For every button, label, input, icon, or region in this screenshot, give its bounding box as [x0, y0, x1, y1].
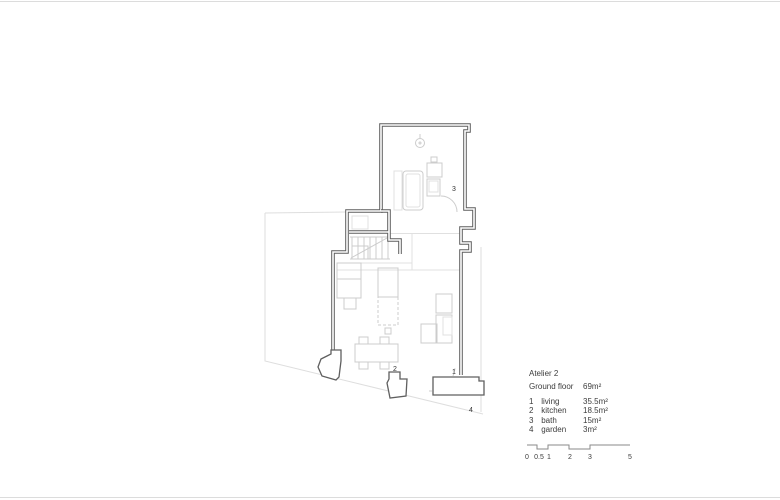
pier-right [433, 377, 484, 395]
room-area: 35.5m² [583, 397, 608, 406]
floor-name: Ground floor [529, 382, 573, 391]
staircase [350, 216, 390, 259]
exterior-wall-core [333, 125, 474, 375]
kitchen-island-dashed [378, 297, 398, 325]
total-area: 69m² [583, 380, 601, 393]
room-number: 1 [529, 397, 539, 406]
room-name: garden [541, 425, 566, 434]
scale-tick-2: 2 [568, 454, 572, 461]
bath-fixtures [394, 134, 457, 212]
closet-under-stairs [352, 216, 368, 229]
ceiling-light-icon [416, 139, 425, 148]
scale-bar-line [527, 445, 630, 449]
plan-label-living: 1 [452, 369, 456, 376]
room-name: living [541, 397, 559, 406]
room-area: 3m² [583, 425, 597, 434]
kitchen-island [378, 268, 398, 297]
legend-row: 2 kitchen 18.5m² [529, 406, 649, 415]
plan-label-kitchen: 2 [393, 366, 397, 373]
armchair-block [421, 324, 437, 343]
bath-sink [427, 163, 442, 177]
scale-bar: 0 0.5 1 2 3 5 [525, 445, 632, 461]
chair [380, 362, 389, 369]
bath-shelf [394, 171, 402, 210]
bathtub-inner [406, 174, 420, 207]
legend-row: 1 living 35.5m² [529, 397, 649, 406]
floor-plan-svg: 1 2 3 4 0 0.5 1 2 3 5 [0, 0, 780, 500]
toilet-inner [429, 181, 438, 192]
room-number: 4 [529, 425, 539, 434]
kitchen-counter [337, 263, 361, 279]
living-furniture [355, 294, 452, 369]
room-area: 15m² [583, 416, 601, 425]
sofa-overlap [443, 317, 452, 335]
plan-label-garden: 4 [469, 407, 473, 414]
scale-tick-1: 1 [547, 454, 551, 461]
scale-tick-3: 3 [588, 454, 592, 461]
room-area: 18.5m² [583, 406, 608, 415]
sofa-block [436, 294, 452, 313]
bath-knob [431, 157, 437, 162]
scale-tick-05: 0.5 [534, 454, 544, 461]
walls [333, 125, 474, 375]
kitchen-appliance [344, 298, 356, 309]
pier-center [387, 372, 407, 398]
boundary-top-line [265, 212, 347, 213]
kitchen-furniture [337, 263, 398, 334]
project-title: Atelier 2 [529, 367, 649, 380]
legend-row: 4 garden 3m² [529, 425, 649, 434]
scale-tick-5: 5 [628, 454, 632, 461]
dining-table [355, 344, 398, 362]
scale-tick-0: 0 [525, 454, 529, 461]
legend-title: Atelier 2 Ground floor 69m² [529, 367, 649, 393]
exterior-wall-outline [333, 125, 474, 375]
pier-left [318, 350, 341, 380]
sofa-block [436, 315, 452, 343]
room-name: bath [541, 416, 557, 425]
chair [380, 337, 389, 344]
room-number: 2 [529, 406, 539, 415]
bath-door-swing-arc [441, 196, 457, 212]
ceiling-light-dot [419, 142, 421, 144]
page: { "title": { "project": "Atelier 2", "fl… [0, 0, 780, 500]
kitchen-island-foot [385, 328, 391, 334]
pier-footings [318, 350, 484, 398]
room-number: 3 [529, 416, 539, 425]
kitchen-counter-lower [337, 279, 361, 298]
legend-row: 3 bath 15m² [529, 416, 649, 425]
chair [359, 362, 368, 369]
room-name: kitchen [541, 406, 566, 415]
legend-rows: 1 living 35.5m² 2 kitchen 18.5m² 3 bath … [529, 397, 649, 435]
floor-title-line: Ground floor 69m² [529, 380, 649, 393]
plan-label-bath: 3 [452, 186, 456, 193]
chair [359, 337, 368, 344]
interior-wall-core [349, 211, 400, 254]
